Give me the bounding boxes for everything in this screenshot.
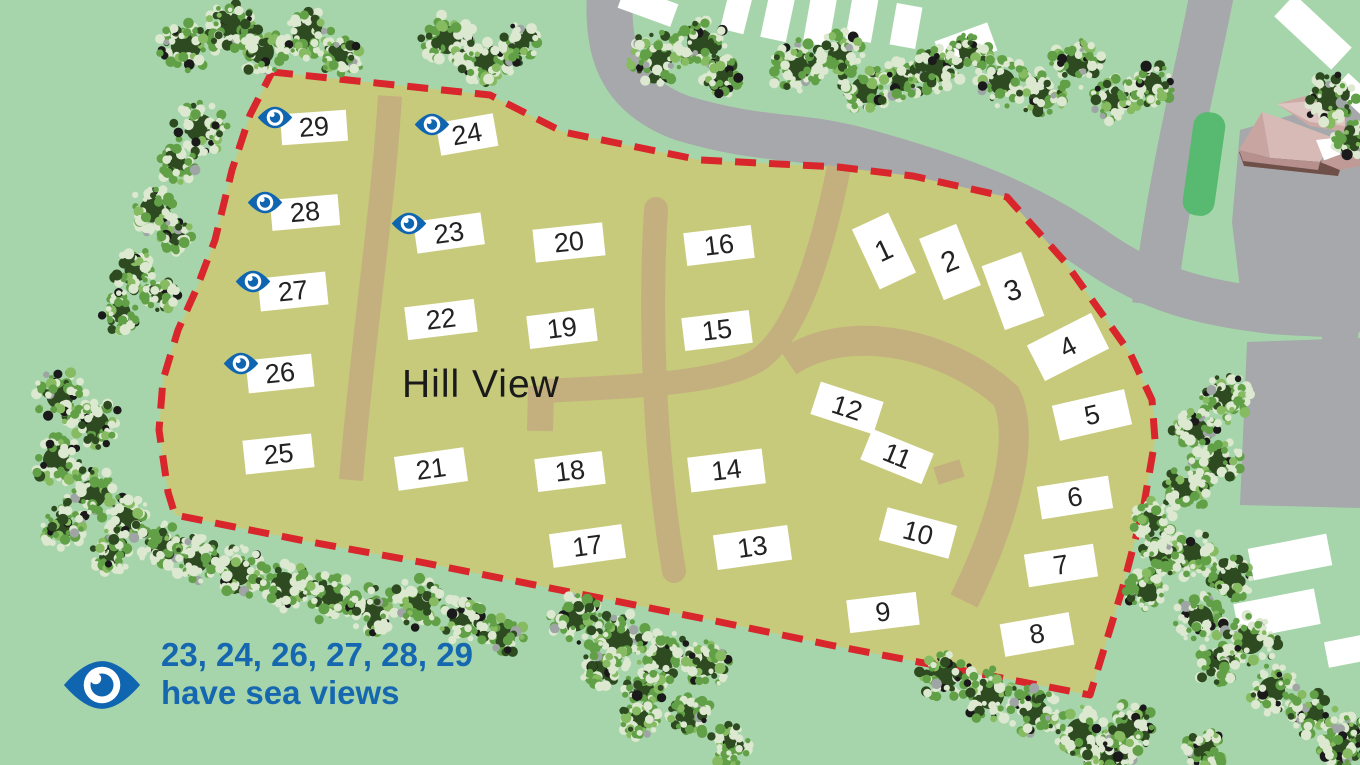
sea-view-legend: 23, 24, 26, 27, 28, 29 have sea views	[0, 0, 1360, 765]
site-map-stage: Hill View 123456789101112131415161718192…	[0, 0, 1360, 765]
legend-eye-icon	[59, 658, 145, 712]
legend-caption: have sea views	[161, 674, 473, 712]
legend-plot-numbers: 23, 24, 26, 27, 28, 29	[161, 636, 473, 674]
legend-text: 23, 24, 26, 27, 28, 29 have sea views	[161, 636, 473, 712]
